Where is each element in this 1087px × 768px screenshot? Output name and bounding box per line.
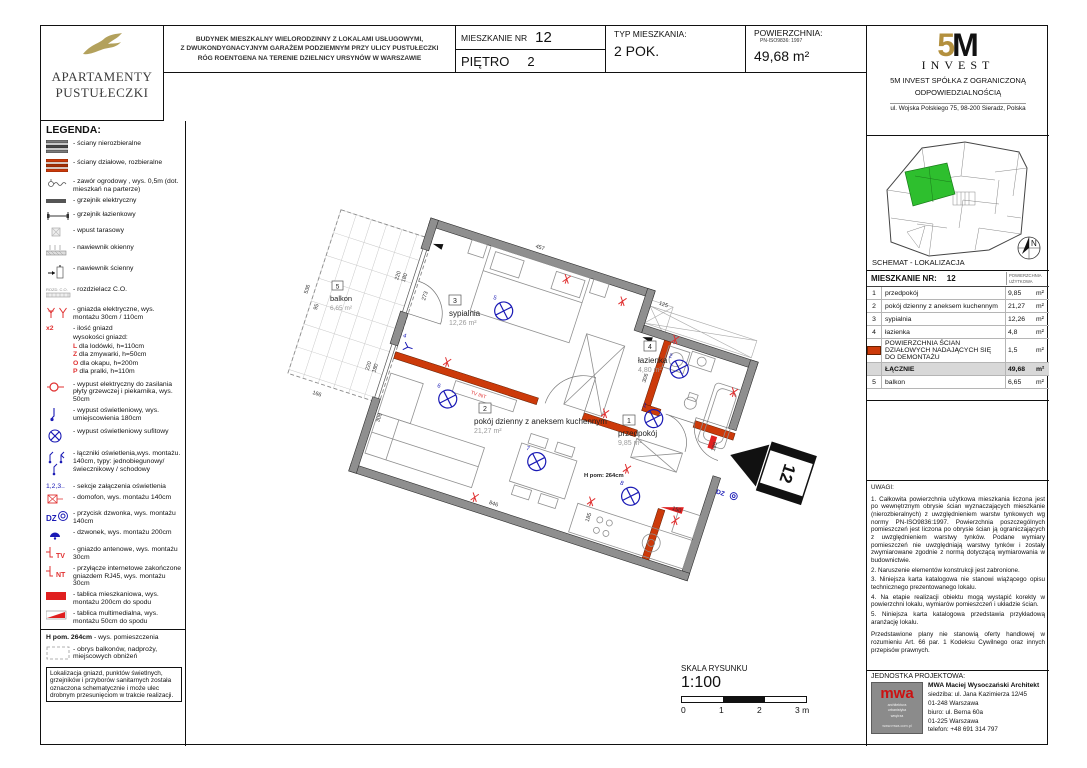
legend-item-label: - nawiewnik ścienny <box>73 265 182 283</box>
brand-logo-cell: APARTAMENTY PUSTUŁECZKI <box>41 26 164 121</box>
mwa-logo: mwa architekturaurbanistykawnętrza www.m… <box>871 682 923 734</box>
legend-item-label: - tablica multimedialna, wys. montażu 50… <box>73 610 182 625</box>
legend-item-label: - sekcje załączenia oświetlenia <box>73 483 182 491</box>
legend-item-label: - gniazdo antenowe, wys. montażu 30cm <box>73 546 182 561</box>
legend-item-label: - wypust oświetleniowy sufitowy <box>73 428 182 447</box>
project-description: BUDYNEK MIESZKALNY WIELORODZINNY Z LOKAL… <box>164 26 456 73</box>
legend-title: LEGENDA: <box>46 125 182 137</box>
electric-socket-icon <box>46 306 73 322</box>
svg-text:180: 180 <box>401 273 410 284</box>
scale-block: SKALA RYSUNKU 1:100 0123 m <box>681 664 861 715</box>
design-office-title: JEDNOSTKA PROJEKTOWA: <box>871 673 1045 680</box>
bathroom-heater-icon <box>46 211 73 224</box>
brand-name: APARTAMENTY PUSTUŁECZKI <box>41 69 163 102</box>
intercom-icon <box>46 494 73 507</box>
area-norm: PN-ISO9836: 1997 <box>760 38 858 44</box>
floor-value: 2 <box>527 54 534 69</box>
building-outline-map: N <box>867 136 1050 270</box>
developer-cell: 5M INVEST 5M INVEST SPÓŁKA Z OGRANICZONĄ… <box>866 26 1049 136</box>
table-row: 4łazienka4,8m² <box>867 326 1049 339</box>
location-schematic-panel: N SCHEMAT - LOKALIZACJA <box>866 136 1049 271</box>
svg-text:21,27 m²: 21,27 m² <box>474 428 502 435</box>
legend-item-label: - ściany nierozbieralne <box>73 140 182 156</box>
svg-text:6,65 m²: 6,65 m² <box>330 305 353 312</box>
svg-text:125: 125 <box>658 301 669 310</box>
wall-partition-icon <box>46 159 73 175</box>
scale-label: SKALA RYSUNKU <box>681 664 861 673</box>
type-label: TYP MIESZKANIA: <box>614 29 737 39</box>
developer-name-line1: 5M INVEST SPÓŁKA Z OGRANICZONĄ <box>867 76 1049 85</box>
room-height-symbol: H pom. 264cm <box>46 634 92 641</box>
legend-item-label: - wypust elektryczny do zasilania płyty … <box>73 381 182 404</box>
svg-text:12,26 m²: 12,26 m² <box>449 320 477 327</box>
wall-vent-icon <box>46 265 73 283</box>
logo-invest: INVEST <box>867 58 1049 73</box>
room-label-sypialnia: 3 sypialnia 12,26 m² <box>449 295 481 327</box>
legend-item-label: - gniazda elektryczne, wys. montażu 30cm… <box>73 306 182 322</box>
table-row: 1przedpokój9,85m² <box>867 287 1049 300</box>
legend-item-label: - domofon, wys. montażu 140cm <box>73 494 182 507</box>
note-item: 1. Całkowita powierzchnia użytkowa miesz… <box>871 496 1045 565</box>
svg-text:pokój dzienny z aneksem kuchen: pokój dzienny z aneksem kuchennym <box>474 417 607 426</box>
location-schematic-title: SCHEMAT - LOKALIZACJA <box>872 258 965 267</box>
apartment-number-value: 12 <box>535 29 552 46</box>
wall-light-outlet-icon <box>46 407 73 425</box>
legend-item-label: - obrys balkonów, nadproży, miejscowych … <box>73 646 182 663</box>
floor-plan-drawing: 5 6 7 8 1 2 4 TV INT <box>186 73 866 746</box>
table-header-label: MIESZKANIE NR: <box>867 274 937 283</box>
note-item: 5. Niniejsza karta katalogowa przedstawi… <box>871 611 1045 626</box>
legend-item-label: - przycisk dzwonka, wys. montażu 140cm <box>73 510 182 525</box>
svg-text:6: 6 <box>436 383 442 390</box>
legend-item-label: - tablica mieszkaniowa, wys. montażu 200… <box>73 591 182 606</box>
apartment-type-cell: TYP MIESZKANIA: 2 POK. <box>606 26 746 73</box>
multimedia-panel-icon <box>46 610 73 625</box>
legend-item-label: - wypust oświetleniowy, wys. umiejscowie… <box>73 407 182 425</box>
svg-text:2: 2 <box>668 353 674 360</box>
apartment-panel-icon <box>46 591 73 606</box>
svg-text:4: 4 <box>648 344 652 351</box>
legend-note: Lokalizacja gniazd, punktów świetlnych, … <box>46 667 182 702</box>
legend-item-label: - wys. pomieszczenia <box>94 634 159 641</box>
svg-text:balkon: balkon <box>330 294 352 303</box>
svg-text:180: 180 <box>371 363 380 374</box>
area-value: 49,68 m² <box>754 48 858 64</box>
socket-count-symbol: x2 <box>46 325 73 377</box>
light-sections-symbol: 1,2,3.. <box>46 483 73 491</box>
svg-text:2: 2 <box>483 406 487 413</box>
table-row-balcony: 5balkon6,65m² <box>867 376 1049 389</box>
svg-text:5: 5 <box>492 295 498 302</box>
table-row: 3sypialnia12,26m² <box>867 313 1049 326</box>
table-header-area-col: POWIERZCHNIA UŻYTKOWA <box>1006 272 1049 284</box>
svg-text:185: 185 <box>585 512 594 523</box>
scale-ticks: 0123 m <box>681 705 833 715</box>
table-row-demolition: POWIERZCHNIA ŚCIAN DZIAŁOWYCH NADAJĄCYCH… <box>867 339 1049 363</box>
mwa-logo-url: www.mwa.com.pl <box>872 724 922 728</box>
room-label-pokoj-dzienny: 2 pokój dzienny z aneksem kuchennym 21,2… <box>474 403 607 435</box>
internet-socket-icon: NT <box>46 565 73 588</box>
project-description-line: BUDYNEK MIESZKALNY WIELORODZINNY Z LOKAL… <box>170 35 449 45</box>
window-vent-icon <box>46 244 73 262</box>
electric-heater-icon <box>46 197 73 208</box>
svg-text:846: 846 <box>488 500 499 509</box>
table-row: 2pokój dzienny z aneksem kuchennym21,27m… <box>867 300 1049 313</box>
note-item: 4. Na etapie realizacji obiektu mogą wys… <box>871 594 1045 609</box>
svg-text:1: 1 <box>627 418 631 425</box>
doorbell-icon <box>46 529 73 543</box>
design-office-panel: JEDNOSTKA PROJEKTOWA: mwa architekturaur… <box>866 671 1049 746</box>
legend-item-label: - zawór ogrodowy , wys. 0,5m (dot. miesz… <box>73 178 182 193</box>
note-item: 2. Naruszenie elementów konstrukcji jest… <box>871 567 1045 575</box>
room-area-table: MIESZKANIE NR: 12 POWIERZCHNIA UŻYTKOWA … <box>866 271 1049 401</box>
svg-text:sypialnia: sypialnia <box>449 309 481 318</box>
notes-title: UWAGI: <box>871 484 1045 492</box>
area-label: POWIERZCHNIA: <box>754 28 822 38</box>
balcony-area <box>288 210 432 403</box>
legend-item-label: - przyłącze internetowe zakończone gniaz… <box>73 565 182 588</box>
legend-item-label: - dzwonek, wys. montażu 200cm <box>73 529 182 543</box>
svg-text:4: 4 <box>402 333 408 340</box>
legend-item-label: - łączniki oświetlenia,wys. montażu. 140… <box>73 450 182 479</box>
svg-text:ROZD. C.O.: ROZD. C.O. <box>46 287 68 292</box>
svg-text:N: N <box>1031 239 1037 248</box>
doorbell-symbol: DZ <box>715 487 738 502</box>
svg-text:306: 306 <box>642 373 651 384</box>
svg-text:95: 95 <box>313 303 321 311</box>
svg-text:150: 150 <box>671 506 682 515</box>
scale-ratio: 1:100 <box>681 674 861 692</box>
table-header-row: MIESZKANIE NR: 12 POWIERZCHNIA UŻYTKOWA <box>867 271 1049 287</box>
socket-heights-list: - ilość gniazd wysokości gniazd: L dla l… <box>73 325 182 377</box>
empty-panel <box>866 401 1049 481</box>
table-row-total: ŁĄCZNIE49,68m² <box>867 363 1049 376</box>
floor-label: PIĘTRO <box>461 54 509 69</box>
ceiling-light-outlet-icon <box>46 428 73 447</box>
legend-item-label: - grzejnik elektryczny <box>73 197 182 208</box>
room-height-note: H pom: 264cm <box>584 473 624 479</box>
wall-nonremovable-icon <box>46 140 73 156</box>
apartment-number-label: MIESZKANIE NR <box>461 33 527 43</box>
tv-socket-icon: TV <box>46 546 73 561</box>
power-outlet-icon <box>46 381 73 404</box>
svg-text:273: 273 <box>421 291 430 302</box>
type-value: 2 POK. <box>614 43 737 59</box>
doorbell-button-icon: DZ <box>46 510 73 525</box>
legend-item-label: - wpust tarasowy <box>73 227 182 240</box>
svg-text:7: 7 <box>525 446 531 453</box>
kestrel-bird-icon <box>79 32 125 62</box>
notes-panel: UWAGI: 1. Całkowita powierzchnia użytkow… <box>866 481 1049 671</box>
entrance-marker: 12 <box>723 431 816 504</box>
legal-disclaimer: Przedstawione plany nie stanowią oferty … <box>871 631 1045 654</box>
room-label-balkon: 5 balkon 6,65 m² <box>330 281 353 312</box>
svg-text:536: 536 <box>303 284 312 295</box>
svg-text:4,80 m²: 4,80 m² <box>638 367 662 374</box>
terrace-drain-icon <box>46 227 73 240</box>
legend-item-label: - rozdzielacz C.O. <box>73 286 182 303</box>
legend-item-label: - nawiewnik okienny <box>73 244 182 262</box>
svg-text:przedpokój: przedpokój <box>618 429 657 438</box>
svg-text:308: 308 <box>375 413 384 424</box>
developer-name-line2: ODPOWIEDZIALNOŚCIĄ <box>867 88 1049 97</box>
note-item: 3. Niniejsza karta katalogowa nie stanow… <box>871 576 1045 591</box>
scale-bar <box>681 696 807 703</box>
legend-item-label: - ściany działowe, rozbieralne <box>73 159 182 175</box>
wall-lamp-icon <box>403 342 414 352</box>
mwa-logo-text: mwa <box>872 686 922 701</box>
svg-text:8: 8 <box>619 481 625 488</box>
project-description-line: RÓG ROENTGENA NA TERENIE DZIELNICY URSYN… <box>170 54 449 64</box>
drawing-sheet: APARTAMENTY PUSTUŁECZKI BUDYNEK MIESZKAL… <box>40 25 1048 745</box>
legend-item-label: - grzejnik łazienkowy <box>73 211 182 224</box>
area-cell: POWIERZCHNIA: PN-ISO9836: 1997 49,68 m² <box>746 26 866 73</box>
5m-invest-logo: 5M <box>867 30 1049 60</box>
light-section-numbers: 5 6 7 8 1 2 4 <box>379 272 673 489</box>
design-office-details: MWA Maciej Wysoczański Architekt siedzib… <box>928 682 1039 735</box>
svg-text:3: 3 <box>453 298 457 305</box>
svg-text:9,85 m²: 9,85 m² <box>618 440 642 447</box>
developer-address: ul. Wojska Polskiego 75, 98-200 Sieradz,… <box>890 103 1025 112</box>
dimension-labels: 457 125 273 306 50 180 150 846 185 308 1… <box>259 180 761 568</box>
light-switches-icon <box>46 450 73 479</box>
legend-panel: LEGENDA: - ściany nierozbieralne - ścian… <box>41 121 186 746</box>
partition-wall-swatch <box>867 346 881 355</box>
apartment-number-cell: MIESZKANIE NR 12 PIĘTRO 2 <box>456 26 606 73</box>
svg-text:457: 457 <box>535 244 546 253</box>
garden-valve-icon <box>46 178 73 193</box>
project-description-line: Z DWUKONDYGNACYJNYM GARAŻEM PODZIEMNYM P… <box>170 44 449 54</box>
svg-text:DZ: DZ <box>715 489 725 498</box>
table-header-number: 12 <box>947 274 1006 283</box>
svg-text:łazienka: łazienka <box>638 356 668 365</box>
svg-text:5: 5 <box>336 284 340 291</box>
floorplan-sheet: { "brand": {"line1": "APARTAMENTY", "lin… <box>0 0 1087 768</box>
svg-text:166: 166 <box>311 390 322 399</box>
vent-arrow-icon <box>432 241 443 250</box>
north-compass-icon: N <box>1018 237 1040 259</box>
co-distributor-icon: ROZD. C.O. <box>46 286 73 303</box>
balcony-outline-icon <box>46 646 73 663</box>
